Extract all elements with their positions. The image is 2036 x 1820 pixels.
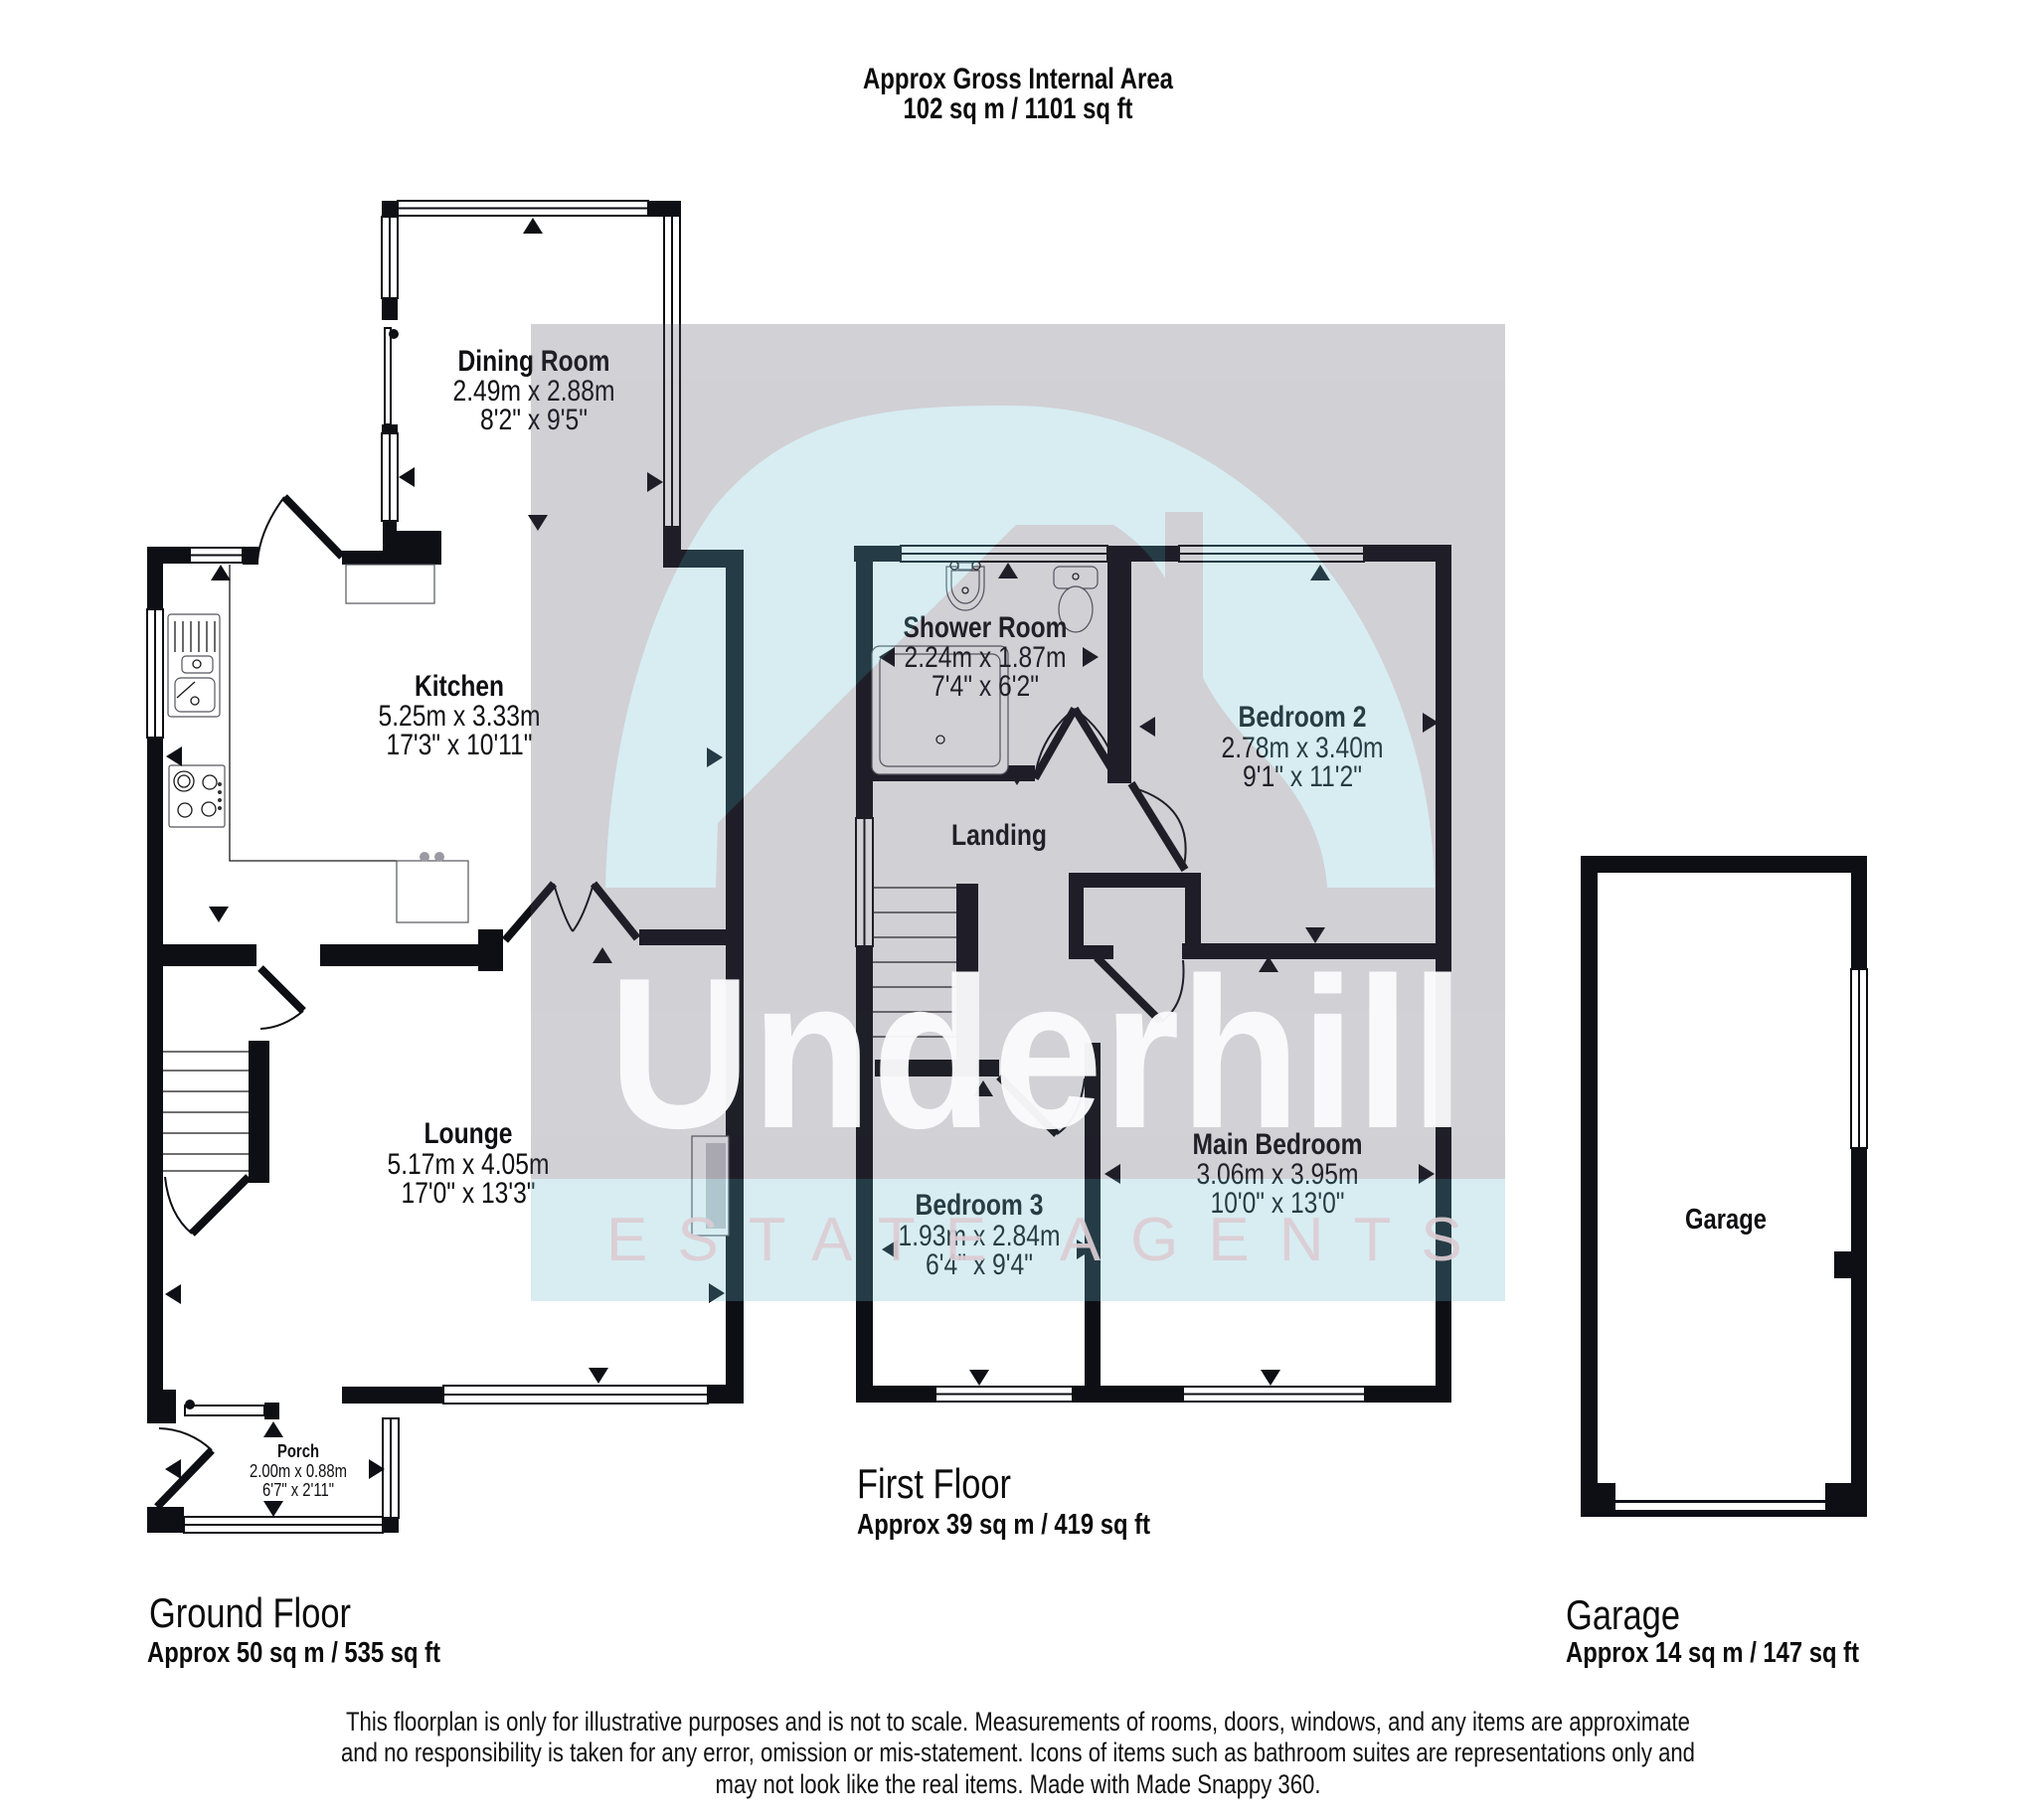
- svg-text:Underhill: Underhill: [608, 932, 1465, 1173]
- svg-text:Approx Gross Internal Area: Approx Gross Internal Area: [863, 63, 1173, 95]
- svg-text:Garage: Garage: [1685, 1204, 1767, 1236]
- svg-text:First Floor: First Floor: [857, 1460, 1011, 1507]
- svg-text:Garage: Garage: [1566, 1591, 1680, 1638]
- svg-text:17'3" x 10'11": 17'3" x 10'11": [387, 729, 533, 761]
- svg-text:and no responsibility is taken: and no responsibility is taken for any e…: [341, 1737, 1695, 1767]
- svg-text:Approx 14 sq m / 147 sq ft: Approx 14 sq m / 147 sq ft: [1566, 1637, 1859, 1669]
- svg-text:2.00m x 0.88m: 2.00m x 0.88m: [250, 1461, 347, 1481]
- svg-text:6'7" x 2'11": 6'7" x 2'11": [262, 1480, 334, 1500]
- svg-text:ESTATE AGENTS: ESTATE AGENTS: [606, 1206, 1492, 1274]
- svg-text:Porch: Porch: [277, 1441, 319, 1461]
- svg-text:may not look like the real ite: may not look like the real items. Made w…: [716, 1769, 1321, 1799]
- svg-text:102 sq m / 1101 sq ft: 102 sq m / 1101 sq ft: [904, 92, 1133, 125]
- svg-text:Lounge: Lounge: [424, 1117, 513, 1150]
- svg-text:Kitchen: Kitchen: [415, 670, 504, 703]
- svg-text:17'0" x 13'3": 17'0" x 13'3": [402, 1177, 536, 1210]
- svg-text:This floorplan is only for ill: This floorplan is only for illustrative …: [346, 1707, 1690, 1737]
- svg-text:Ground Floor: Ground Floor: [149, 1589, 351, 1636]
- svg-text:Approx 50 sq m / 535 sq ft: Approx 50 sq m / 535 sq ft: [147, 1637, 440, 1669]
- svg-text:Approx 39 sq m / 419 sq ft: Approx 39 sq m / 419 sq ft: [857, 1509, 1150, 1541]
